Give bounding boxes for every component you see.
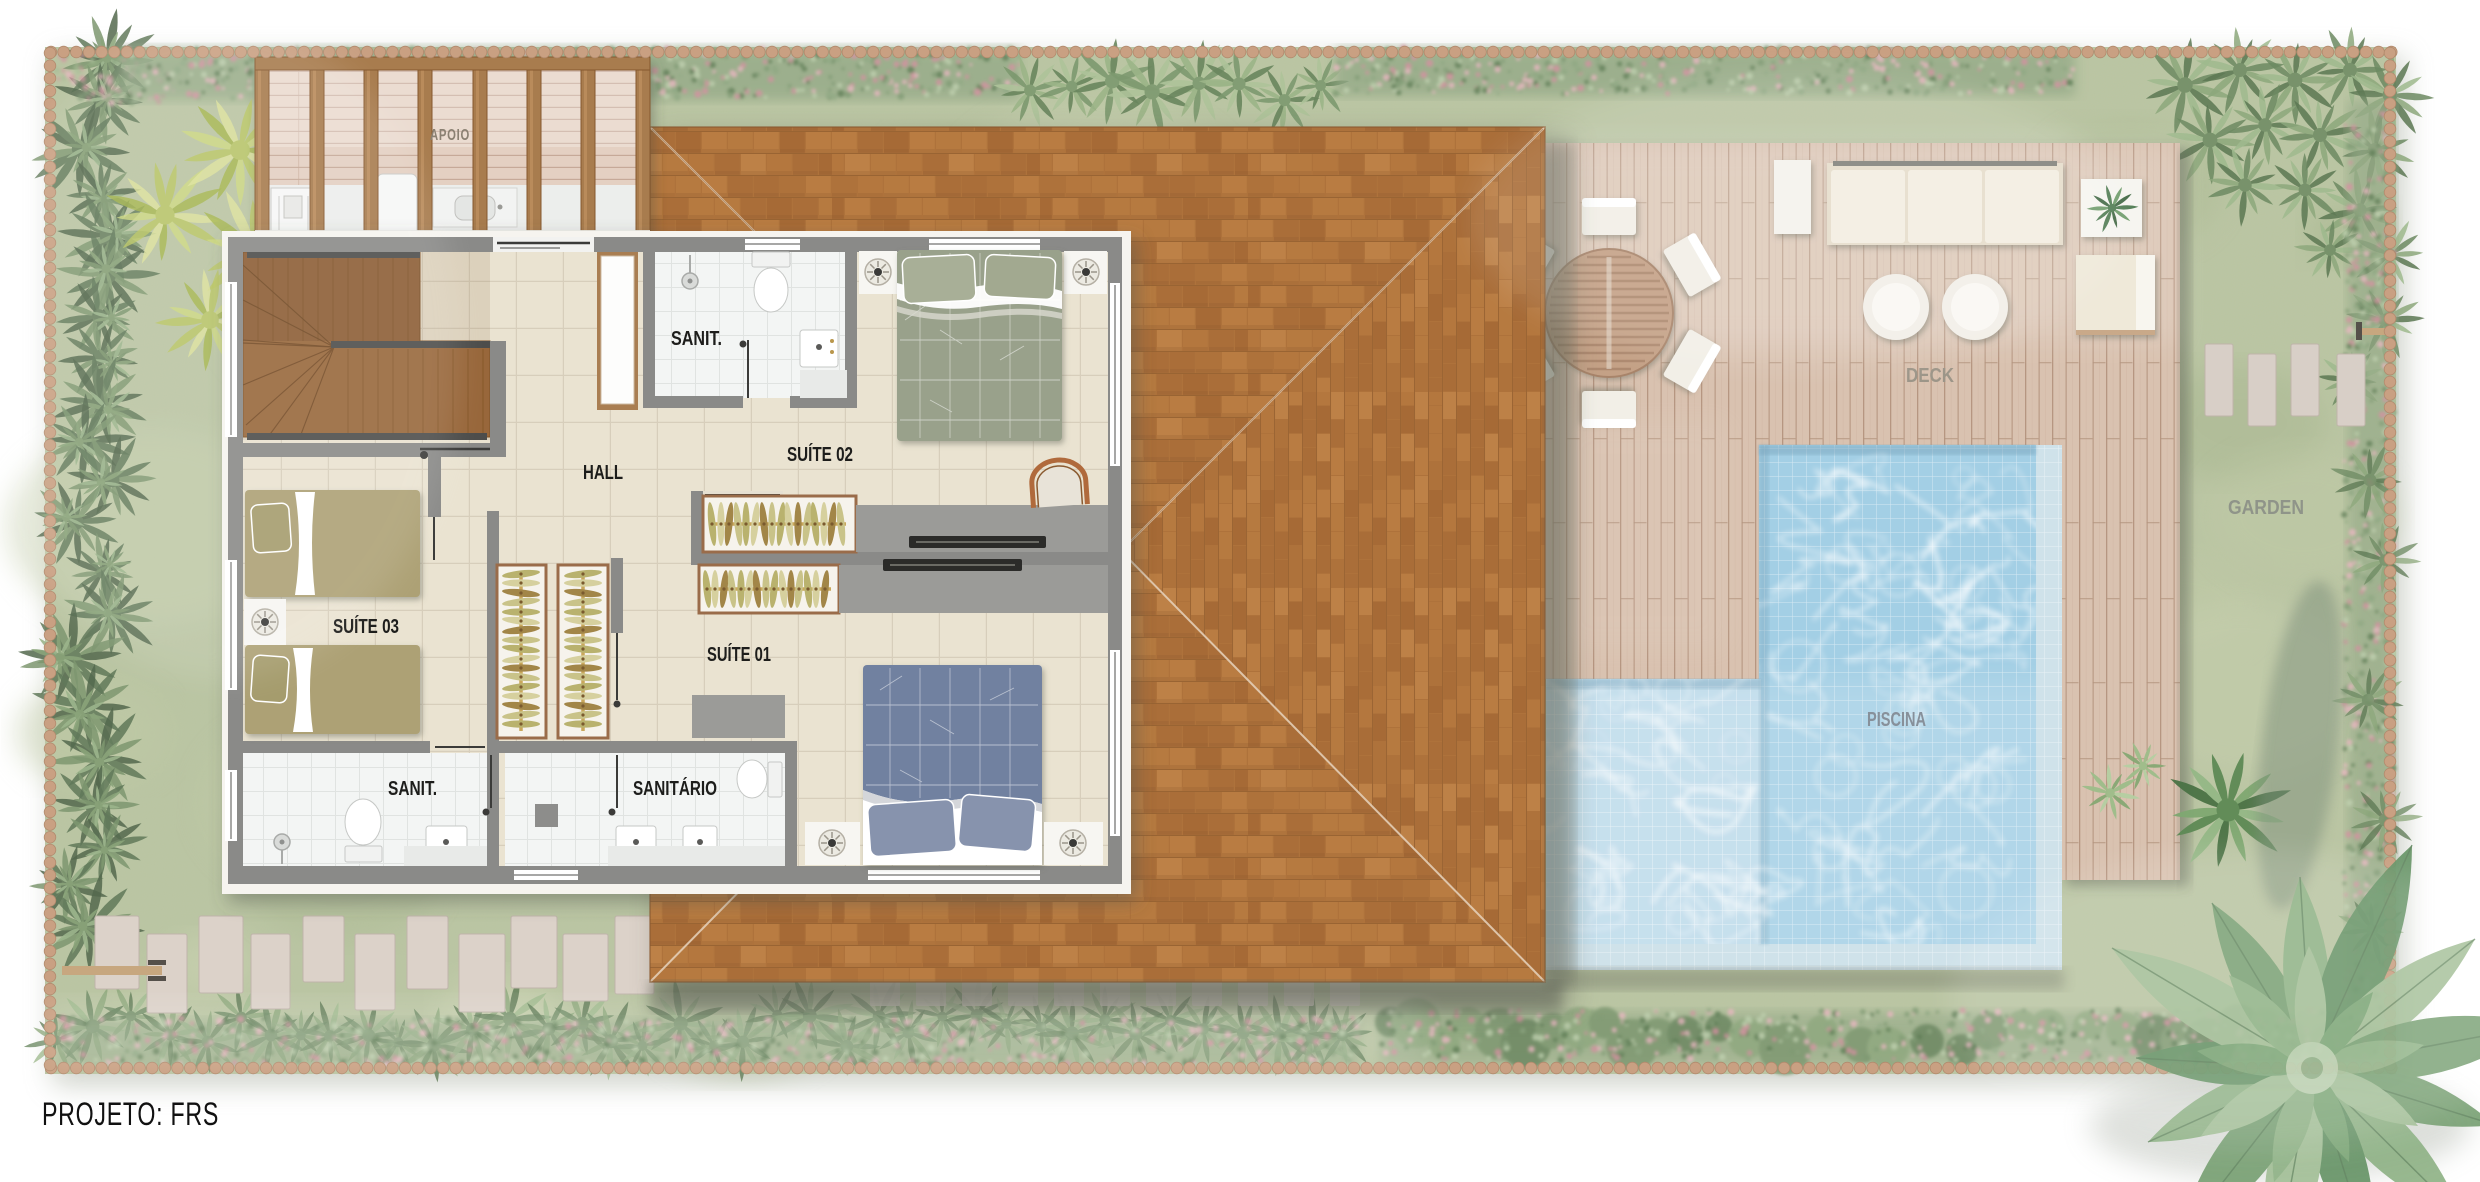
svg-text:SUÍTE 01: SUÍTE 01 <box>707 643 771 666</box>
svg-text:GARDEN: GARDEN <box>2228 497 2304 519</box>
svg-text:SANITÁRIO: SANITÁRIO <box>633 777 717 800</box>
svg-text:PROJETO: FRS: PROJETO: FRS <box>42 1096 219 1132</box>
svg-text:SANIT.: SANIT. <box>388 778 437 800</box>
svg-text:APOIO: APOIO <box>430 127 470 144</box>
svg-text:DECK: DECK <box>1906 365 1954 387</box>
svg-text:HALL: HALL <box>583 462 623 484</box>
svg-text:SUÍTE 03: SUÍTE 03 <box>333 615 399 638</box>
svg-text:SUÍTE 02: SUÍTE 02 <box>787 443 853 466</box>
svg-text:SANIT.: SANIT. <box>671 328 722 350</box>
svg-text:PISCINA: PISCINA <box>1867 709 1926 731</box>
